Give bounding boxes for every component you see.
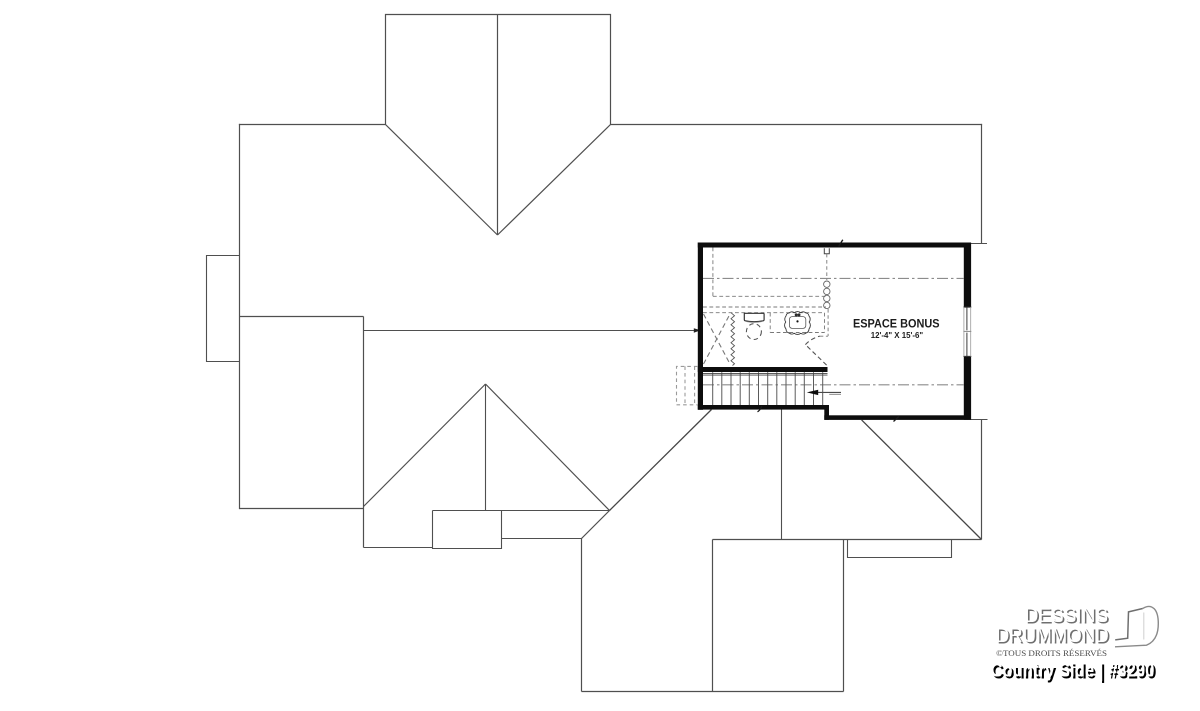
svg-text:12'-4" X 15'-6": 12'-4" X 15'-6" [871, 330, 924, 340]
svg-text:Country Side | #3290: Country Side | #3290 [990, 659, 1154, 681]
svg-text:©TOUS DROITS RÉSERVÉS: ©TOUS DROITS RÉSERVÉS [996, 648, 1107, 658]
svg-text:DESSINS: DESSINS [1025, 605, 1109, 627]
svg-text:DRUMMOND: DRUMMOND [996, 625, 1109, 647]
